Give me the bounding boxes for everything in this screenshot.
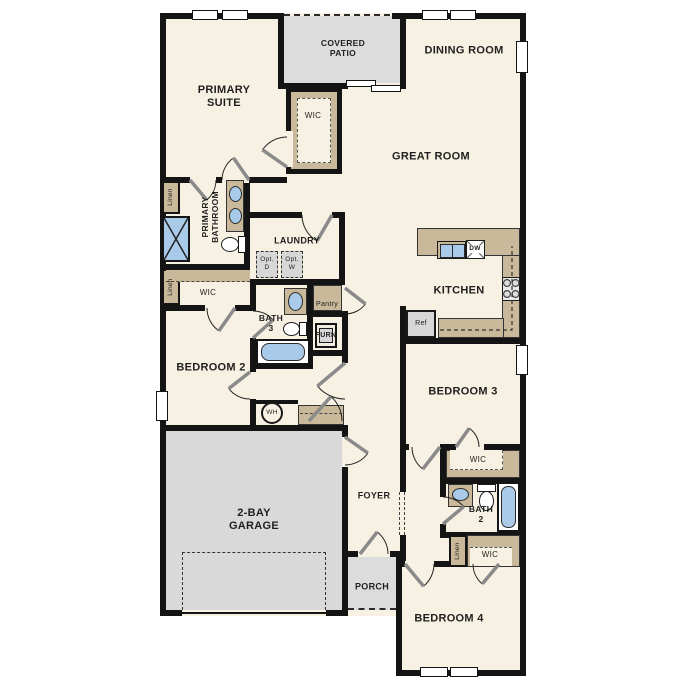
label-refrigerator: Ref [415, 320, 427, 328]
label-water-heater: WH [266, 409, 277, 417]
room-label-covered-patio: COVERED PATIO [321, 38, 365, 58]
room-label-garage: 2-BAY GARAGE [229, 507, 279, 533]
door-swings-overlay [0, 0, 687, 687]
floorplan: PRIMARY SUITE COVERED PATIO DINING ROOM … [0, 0, 687, 687]
room-label-kitchen: KITCHEN [434, 284, 485, 297]
shower-glass-icon [164, 218, 188, 260]
room-label-bedroom4: BEDROOM 4 [414, 612, 483, 625]
room-label-dining-room: DINING ROOM [424, 44, 503, 57]
label-opt-washer: Opt. W [285, 256, 298, 272]
label-dishwasher: DW [468, 245, 481, 253]
label-wic-primary2: WIC [200, 288, 216, 298]
room-label-bath3: BATH 3 [259, 313, 283, 333]
room-label-foyer: FOYER [358, 491, 391, 502]
room-label-porch: PORCH [355, 582, 389, 593]
room-label-bath2: BATH 2 [469, 504, 493, 524]
label-wic-primary: WIC [305, 111, 321, 121]
label-linen: Linen [167, 278, 175, 295]
room-label-great-room: GREAT ROOM [392, 150, 470, 163]
room-label-primary-bathroom: PRIMARY BATHROOM [200, 191, 220, 243]
label-pantry: Pantry [316, 301, 338, 309]
room-label-primary-suite: PRIMARY SUITE [198, 84, 250, 110]
label-opt-dryer: Opt. D [260, 256, 273, 272]
stove-burners-icon [504, 280, 519, 298]
room-label-bedroom3: BEDROOM 3 [428, 385, 497, 398]
label-wic-bedroom3: WIC [470, 455, 486, 465]
room-label-laundry: LAUNDRY [274, 236, 320, 247]
label-linen: Linen [167, 188, 175, 205]
room-label-bedroom2: BEDROOM 2 [176, 361, 245, 374]
label-furnace: FURN [316, 332, 337, 340]
label-wic-bedroom4: WIC [482, 550, 498, 560]
label-linen-bedroom4: Linen [454, 542, 462, 559]
